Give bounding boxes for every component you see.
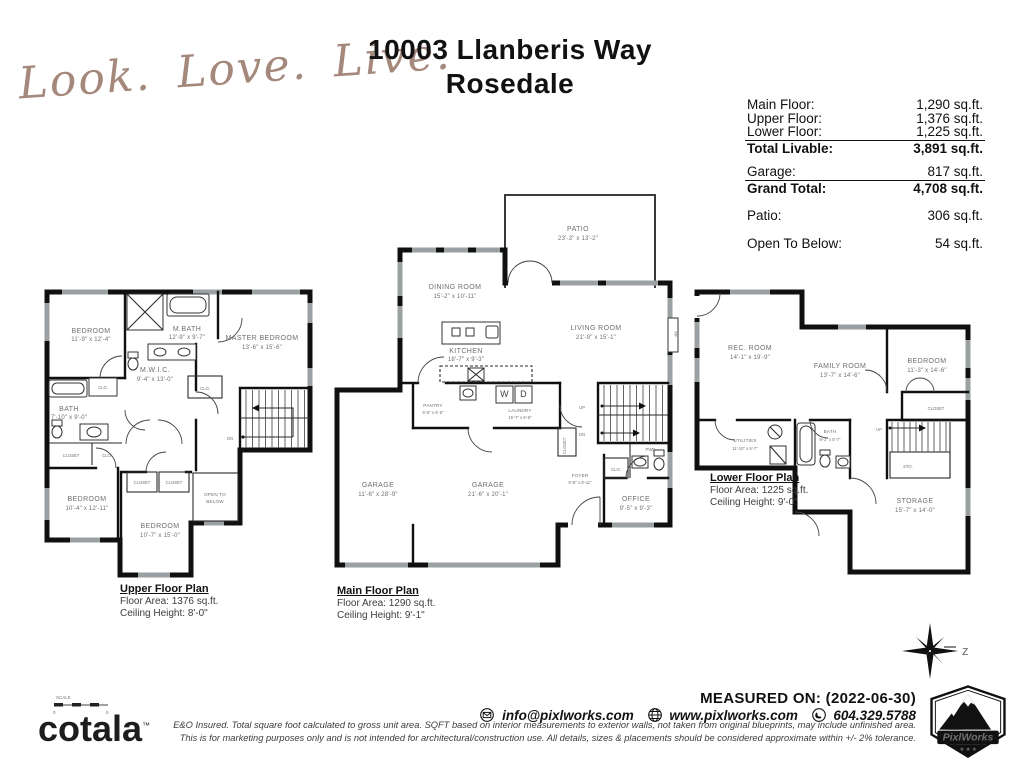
- row-value: 306 sq.ft.: [927, 209, 983, 223]
- summary-row-total-livable: Total Livable: 3,891 sq.ft.: [745, 140, 985, 156]
- room-label-master-bedroom: MASTER BEDROOM: [226, 335, 299, 342]
- row-label: Main Floor:: [747, 98, 815, 112]
- row-label: Lower Floor:: [747, 125, 822, 139]
- room-dims: 21'-9" x 15'-1": [576, 335, 616, 341]
- upper-doors: [96, 318, 242, 472]
- caption-ceiling: Ceiling Height: 9'-1": [337, 610, 435, 622]
- room-dims: 9'-5" x 9'-3": [620, 506, 653, 512]
- caption-ceiling: Ceiling Height: 9'-0": [710, 497, 808, 509]
- lower-floor-caption: Lower Floor Plan Floor Area: 1225 sq.ft.…: [710, 472, 808, 509]
- disclaimer-text: E&O Insured. Total square foot calculate…: [130, 719, 916, 744]
- room-label-laundry: LAUNDRY: [508, 408, 531, 413]
- summary-row-garage: Garage: 817 sq.ft.: [745, 165, 985, 179]
- room-dims: 9'-4" x 13'-0": [137, 377, 173, 383]
- open-to-below-label: BELOW: [206, 499, 224, 504]
- row-label: Upper Floor:: [747, 112, 822, 126]
- room-label-bath: BATH: [59, 406, 79, 413]
- row-value: 3,891 sq.ft.: [913, 142, 983, 156]
- row-label: Patio:: [747, 209, 782, 223]
- floorplan-sheet: Look. Love. Live. 10003 Llanberis Way Ro…: [0, 0, 1024, 768]
- compass-rose-icon: z: [896, 620, 986, 684]
- caption-area: Floor Area: 1290 sq.ft.: [337, 598, 435, 610]
- summary-row-main-floor: Main Floor: 1,290 sq.ft.: [745, 98, 985, 112]
- row-value: 1,290 sq.ft.: [916, 98, 983, 112]
- up-label: UP: [876, 427, 882, 432]
- disclaimer-line1: E&O Insured. Total square foot calculate…: [130, 719, 916, 732]
- room-label-office: OFFICE: [622, 496, 650, 503]
- caption-area: Floor Area: 1376 sq.ft.: [120, 596, 218, 608]
- room-label-mbath: M.BATH: [173, 326, 201, 333]
- room-dims: 12'-9" x 9'-7": [169, 335, 205, 341]
- caption-title: Upper Floor Plan: [120, 583, 218, 595]
- measured-on: MEASURED ON: (2022-06-30): [420, 690, 916, 707]
- main-floor-plan: PATIO 23'-3" x 13'-2" DINING ROOM 15'-2"…: [330, 185, 680, 580]
- page-title: 10003 Llanberis Way Rosedale: [300, 34, 720, 100]
- caption-ceiling: Ceiling Height: 8'-0": [120, 608, 218, 620]
- room-label-garage2: GARAGE: [472, 482, 504, 489]
- room-dims: 9'-2" x 5'-7": [819, 437, 841, 442]
- summary-row-open-to-below: Open To Below: 54 sq.ft.: [745, 237, 985, 251]
- closet-label: CLOSET: [134, 480, 151, 485]
- row-label: Grand Total:: [747, 182, 826, 196]
- room-dims: 15'-2" x 10'-11": [434, 294, 477, 300]
- upper-floor-plan: BEDROOM 11'-9" x 12'-4" M.BATH 12'-9" x …: [40, 280, 320, 625]
- row-value: 1,225 sq.ft.: [916, 125, 983, 139]
- clo-label: CLO.: [98, 385, 108, 390]
- row-label: Total Livable:: [747, 142, 833, 156]
- room-label-dining: DINING ROOM: [429, 284, 482, 291]
- room-label-storage: STORAGE: [897, 498, 934, 505]
- room-label-bedroom2: BEDROOM: [68, 496, 107, 503]
- room-label-bedroom3: BEDROOM: [141, 523, 180, 530]
- room-dims: 10'-4" x 12'-11": [66, 506, 109, 512]
- room-dims: 11'-10" x 5'-7": [732, 446, 758, 451]
- room-dims: 11'-6" x 28'-9": [358, 492, 397, 498]
- city-line: Rosedale: [300, 68, 720, 100]
- room-dims: 7'-10" x 9'-0": [51, 415, 87, 421]
- room-label-foyer: FOYER: [572, 473, 589, 478]
- room-dims: 13'-6" x 15'-6": [242, 345, 282, 351]
- scale-label: SCALE: [56, 695, 71, 700]
- disclaimer-line2: This is for marketing purposes only and …: [130, 732, 916, 745]
- pixlworks-stars: ★ ★ ★: [959, 747, 976, 753]
- script-word: Love.: [175, 38, 309, 98]
- room-dims: 6'-5" x 6'-5": [422, 410, 444, 415]
- row-label: Garage:: [747, 165, 796, 179]
- main-walls: [337, 250, 670, 565]
- lower-floor-plan: REC. ROOM 14'-1" x 19'-9" FAMILY ROOM 13…: [685, 280, 985, 610]
- dryer-label: D: [520, 389, 527, 399]
- pixlworks-logo: PixlWorks ★ ★ ★: [920, 684, 1016, 760]
- room-label-kitchen: KITCHEN: [449, 348, 483, 355]
- clo-label: CLO.: [200, 386, 210, 391]
- upper-stairs: [240, 390, 310, 448]
- room-label-living: LIVING ROOM: [570, 325, 621, 332]
- clo-label: CLO.: [611, 467, 621, 472]
- room-label-bedroom: BEDROOM: [72, 328, 111, 335]
- upper-floor-caption: Upper Floor Plan Floor Area: 1376 sq.ft.…: [120, 583, 218, 620]
- room-dims: 6'-8" x 6'-11": [568, 480, 592, 485]
- fp-label: FP: [673, 331, 678, 337]
- clo-label: CLO.: [102, 453, 112, 458]
- script-word: Look.: [17, 49, 153, 109]
- room-label-mwic: M.W.I.C.: [140, 367, 170, 374]
- room-dims: 11'-9" x 12'-4": [71, 337, 110, 343]
- row-value: 817 sq.ft.: [927, 165, 983, 179]
- room-label-pantry: PANTRY: [423, 403, 442, 408]
- dn-label: DN: [579, 432, 585, 437]
- row-label: Open To Below:: [747, 237, 842, 251]
- room-label-family-room: FAMILY ROOM: [814, 363, 866, 370]
- room-label-rec-room: REC. ROOM: [728, 345, 772, 352]
- summary-row-upper-floor: Upper Floor: 1,376 sq.ft.: [745, 112, 985, 126]
- closet-label: CLOSET: [928, 406, 945, 411]
- room-label-utilities: UTILITIES: [733, 438, 756, 443]
- look-love-live-script-logo: Look. Love. Live.: [17, 38, 323, 159]
- caption-area: Floor Area: 1225 sq.ft.: [710, 485, 808, 497]
- room-dims: 11'-3" x 14'-6": [907, 368, 946, 374]
- main-stairs: [598, 385, 668, 441]
- main-doors: [418, 261, 648, 525]
- pixlworks-wordmark: PixlWorks: [943, 732, 994, 744]
- main-floor-caption: Main Floor Plan Floor Area: 1290 sq.ft. …: [337, 585, 435, 622]
- caption-title: Lower Floor Plan: [710, 472, 808, 484]
- closet-label: CLOSET: [166, 480, 183, 485]
- row-value: 54 sq.ft.: [935, 237, 983, 251]
- pwd-label: PWD.: [646, 447, 657, 452]
- room-dims: 15'-7" x 6'-5": [508, 415, 532, 420]
- room-label-garage1: GARAGE: [362, 482, 394, 489]
- summary-row-grand-total: Grand Total: 4,708 sq.ft.: [745, 180, 985, 196]
- cotala-wordmark: cotala: [38, 708, 142, 749]
- summary-row-patio: Patio: 306 sq.ft.: [745, 209, 985, 223]
- room-dims: 14'-1" x 19'-9": [730, 355, 770, 361]
- lower-fixtures: [768, 423, 850, 468]
- summary-row-lower-floor: Lower Floor: 1,225 sq.ft.: [745, 125, 985, 139]
- room-label-patio: PATIO: [567, 226, 589, 233]
- address-line: 10003 Llanberis Way: [300, 34, 720, 66]
- closet-label: CLOSET: [562, 437, 567, 454]
- washer-label: W: [500, 389, 509, 399]
- caption-title: Main Floor Plan: [337, 585, 435, 597]
- open-to-below-label: OPEN TO: [204, 492, 226, 497]
- compass-letter: z: [962, 643, 969, 658]
- dn-label: DN: [227, 436, 233, 441]
- row-value: 4,708 sq.ft.: [913, 182, 983, 196]
- area-summary-table: Main Floor: 1,290 sq.ft. Upper Floor: 1,…: [745, 98, 985, 250]
- closet-label: CLOSET: [63, 453, 80, 458]
- room-dims: 15'-7" x 14'-0": [895, 508, 935, 514]
- row-value: 1,376 sq.ft.: [916, 112, 983, 126]
- room-dims: 18'-7" x 9'-3": [448, 357, 484, 363]
- up-label: UP: [579, 405, 585, 410]
- room-label-bath: BATH: [824, 429, 837, 434]
- room-dims: 23'-3" x 13'-2": [558, 236, 598, 242]
- room-dims: 21'-6" x 20'-1": [468, 492, 508, 498]
- room-dims: 13'-7" x 14'-6": [820, 373, 860, 379]
- sto-label: STO.: [903, 464, 913, 469]
- lower-stairs: [889, 422, 947, 452]
- room-label-bedroom: BEDROOM: [908, 358, 947, 365]
- room-dims: 10'-7" x 15'-0": [140, 533, 180, 539]
